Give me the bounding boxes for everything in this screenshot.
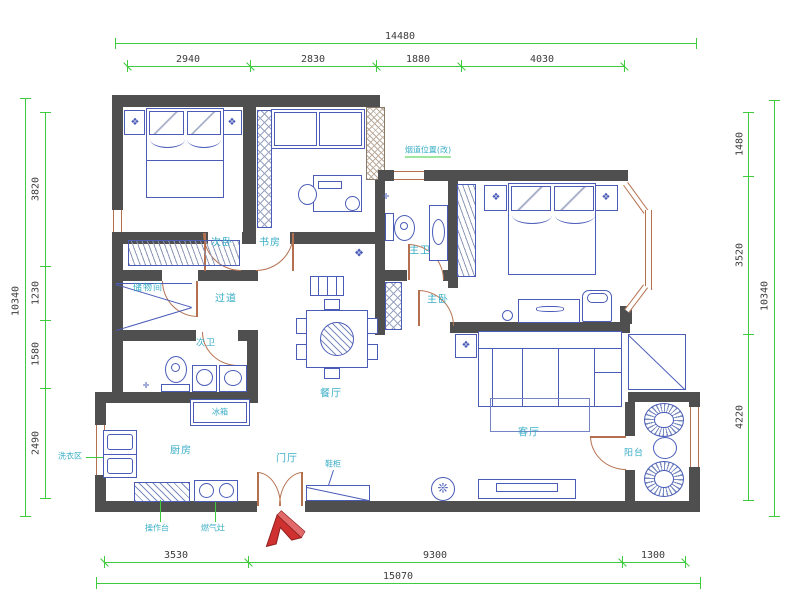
- dim-line-top-total: [115, 43, 696, 44]
- dim-endtick: [115, 38, 116, 49]
- storage-shelf-line: [116, 307, 192, 331]
- wall-bedrooms-bottom-c: [290, 232, 380, 244]
- dim-endtick: [96, 577, 97, 589]
- leader-counter: [160, 500, 161, 522]
- stove-label: 燃气灶: [201, 523, 225, 534]
- dim-endtick: [20, 98, 31, 99]
- dim-endtick: [743, 112, 754, 113]
- wall-left-mid: [112, 240, 123, 392]
- leader-laundry: [86, 457, 103, 458]
- tv-set: [496, 483, 558, 492]
- wardrobe-master: [457, 184, 476, 277]
- room-label-bedroom2: 次卧: [211, 234, 233, 249]
- fan-icon: ❊: [438, 483, 449, 496]
- burner: [199, 483, 214, 498]
- wall-balcony-divider-a: [625, 402, 635, 436]
- dim-endtick: [20, 516, 31, 517]
- dining-chair: [324, 368, 340, 379]
- closet-corridor: [385, 282, 402, 330]
- window-living-right: [690, 407, 699, 467]
- laundry-divider: [103, 454, 137, 455]
- toilet-dot: [400, 222, 408, 230]
- room-label-balcony: 阳台: [624, 446, 644, 459]
- dim-left-seg3: 2490: [31, 431, 42, 455]
- toilet-tank-bath2: [161, 384, 190, 392]
- dim-right-seg0: 1480: [735, 132, 746, 156]
- stool-master: [502, 310, 513, 321]
- balcony-chair: [644, 461, 684, 497]
- decor-flower-icon: ❖: [354, 248, 364, 259]
- counter-label: 操作台: [145, 523, 169, 534]
- dim-right-seg1: 3520: [735, 243, 746, 267]
- wall-master-top: [450, 170, 628, 181]
- room-label-second-bath: 次卫: [196, 336, 216, 349]
- floor-plan: 14480 2940 2830 1880 4030 3530 9300 1300…: [0, 0, 810, 606]
- dim-line-bottom-segs: [104, 562, 685, 563]
- balcony-chair-seat: [654, 470, 674, 488]
- dim-top-seg3: 4030: [530, 54, 554, 65]
- door-leaf-balcony: [590, 436, 626, 438]
- dim-right-total: 10340: [760, 281, 771, 311]
- wall-kitchen-right: [247, 330, 258, 403]
- wall-left-lower-a: [95, 392, 106, 425]
- sideboard-line: [318, 276, 319, 296]
- dim-endtick: [743, 500, 754, 501]
- dining-chair: [324, 299, 340, 310]
- drain-icon: ✛: [143, 382, 150, 390]
- dim-line-right-segs: [748, 112, 749, 500]
- dim-left-seg0: 3820: [31, 177, 42, 201]
- dim-endtick: [624, 60, 625, 72]
- dining-chair: [296, 318, 307, 334]
- rug-living: [490, 398, 590, 432]
- room-label-study: 书房: [259, 234, 281, 249]
- wall-bottom-foyer: [305, 501, 402, 512]
- dim-left-total: 10340: [11, 286, 22, 316]
- daybed-cushion: [274, 112, 317, 146]
- room-label-master: 主卧: [427, 291, 449, 306]
- fan-study: [345, 196, 360, 211]
- blanket-curve: [150, 131, 185, 148]
- entry-door-left-arc: [257, 472, 281, 506]
- window-bath: [394, 171, 424, 180]
- dim-endtick: [769, 516, 780, 517]
- leader-shoe: [328, 470, 334, 486]
- wall-bath2-top-a: [112, 330, 196, 341]
- room-label-hallway: 过道: [215, 290, 237, 305]
- table-plant: [320, 322, 354, 356]
- wall-bath-top-b: [424, 170, 450, 181]
- decor-flower-icon: ❖: [462, 341, 471, 351]
- flue-note: 烟道位置(改): [405, 145, 451, 158]
- room-label-foyer: 门厅: [276, 450, 298, 465]
- lamp-flower-icon: ❖: [228, 118, 237, 128]
- leader-stove: [215, 502, 216, 522]
- blanket-curve: [512, 207, 552, 224]
- dim-endtick: [40, 112, 51, 113]
- dim-bottom-seg0: 3530: [164, 550, 188, 561]
- dim-right-seg2: 4220: [735, 405, 746, 429]
- dim-endtick: [696, 38, 697, 49]
- chair-master-back: [587, 293, 608, 303]
- shoe-label: 鞋柜: [325, 459, 341, 470]
- entry-door-left-leaf: [257, 472, 259, 506]
- dim-top-total: 14480: [385, 31, 415, 42]
- sofa-living: [478, 331, 622, 407]
- toilet-tank-bath1: [385, 213, 394, 241]
- wall-bedroom-divider: [243, 95, 256, 244]
- washer-drum: [196, 369, 213, 386]
- laundry-basin: [107, 458, 133, 474]
- dining-chair: [367, 344, 378, 360]
- dining-chair: [367, 318, 378, 334]
- dim-endtick: [40, 388, 51, 389]
- counter: [134, 482, 190, 502]
- daybed-cushion: [319, 112, 362, 146]
- dim-top-seg1: 2830: [301, 54, 325, 65]
- sideboard-line: [336, 276, 337, 296]
- room-label-dining: 餐厅: [320, 385, 342, 400]
- drain-icon: ✛: [383, 193, 390, 201]
- door-leaf-study: [292, 233, 294, 271]
- dining-chair: [296, 344, 307, 360]
- basin-bath1: [432, 219, 445, 245]
- sofa-back-line: [479, 348, 621, 349]
- dim-bottom-seg2: 1300: [641, 550, 665, 561]
- room-label-storage: 储物间: [133, 281, 163, 294]
- closet-study: [257, 110, 272, 228]
- dim-left-seg1: 1230: [31, 281, 42, 305]
- dim-line-bottom-total: [96, 583, 700, 584]
- laundry-basin: [107, 434, 133, 450]
- lamp-flower-icon: ❖: [131, 118, 140, 128]
- dim-endtick: [769, 100, 780, 101]
- dim-endtick: [700, 577, 701, 589]
- dim-endtick: [461, 60, 462, 72]
- sideboard-line: [327, 276, 328, 296]
- wall-bedrooms-bottom-b: [242, 232, 256, 244]
- balcony-table: [653, 437, 677, 459]
- chair-study: [298, 184, 317, 205]
- door-leaf-master: [418, 290, 420, 326]
- room-label-master-bath: 主卫: [409, 242, 431, 257]
- sink-basin: [224, 370, 242, 386]
- wall-bottom-living: [402, 501, 700, 512]
- sofa-chaise-line: [594, 372, 622, 373]
- dim-endtick: [127, 60, 128, 72]
- lamp-flower-icon: ❖: [602, 193, 611, 203]
- dim-bottom-total: 15070: [383, 571, 413, 582]
- bay-window-bottom: [625, 284, 648, 312]
- wall-balcony-top: [628, 392, 700, 402]
- lamp-flower-icon: ❖: [492, 193, 501, 203]
- dim-line-right-total: [774, 100, 775, 516]
- dim-endtick: [376, 60, 377, 72]
- balcony-chair: [644, 403, 684, 437]
- room-label-living: 客厅: [518, 424, 540, 439]
- wall-bottom-kitchen: [95, 501, 257, 512]
- dim-endtick: [40, 266, 51, 267]
- door-arc-balcony: [590, 436, 626, 470]
- dim-endtick: [743, 334, 754, 335]
- blanket-curve: [555, 207, 595, 224]
- desk-drawer: [318, 181, 342, 189]
- wall-storage-top-b: [198, 270, 258, 281]
- dim-endtick: [40, 498, 51, 499]
- dim-top-seg0: 2940: [176, 54, 200, 65]
- bed-line: [147, 160, 223, 161]
- blanket-curve: [187, 131, 221, 148]
- room-label-kitchen: 厨房: [170, 442, 192, 457]
- bay-window-mid: [645, 210, 652, 290]
- dim-endtick: [250, 60, 251, 72]
- wall-right-b: [689, 467, 700, 512]
- fridge-label: 冰箱: [212, 407, 228, 418]
- sofa-div: [594, 348, 595, 406]
- balcony-chair-seat: [654, 412, 674, 429]
- wall-left-upper: [112, 95, 123, 210]
- wall-storage-top-a: [112, 270, 162, 281]
- burner: [219, 483, 234, 498]
- dim-bottom-seg1: 9300: [423, 550, 447, 561]
- door-leaf-storage: [196, 281, 198, 317]
- dresser-handle: [536, 306, 564, 312]
- wall-balcony-divider-b: [625, 470, 635, 512]
- dim-line-left-total: [25, 98, 26, 516]
- dim-endtick: [743, 176, 754, 177]
- dim-top-seg2: 1880: [406, 54, 430, 65]
- dim-left-seg2: 1580: [31, 342, 42, 366]
- wall-bath1-bottom-a: [375, 270, 407, 281]
- toilet-dot: [171, 363, 180, 372]
- laundry-label: 洗衣区: [58, 451, 82, 462]
- dim-endtick: [40, 320, 51, 321]
- dim-line-left-segs: [45, 112, 46, 498]
